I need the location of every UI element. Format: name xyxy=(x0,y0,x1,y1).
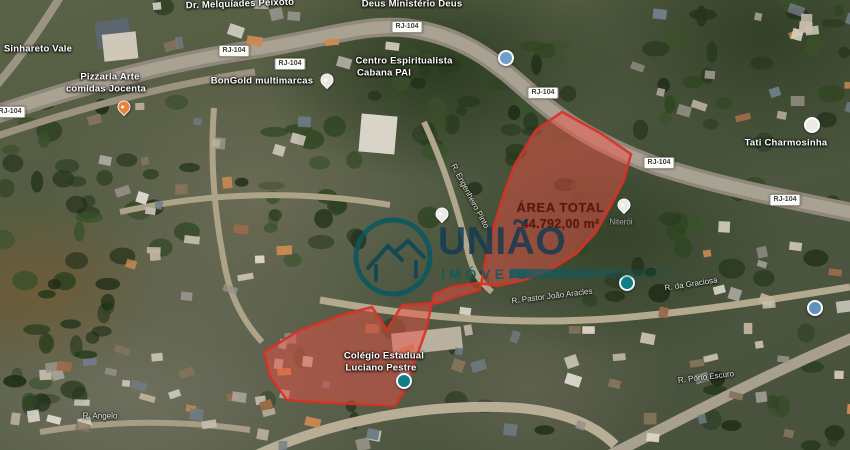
satellite-map[interactable]: Dr. Melquíades PeixotoDeus Ministério De… xyxy=(0,0,850,450)
highlighted-lot-polygon[interactable] xyxy=(264,112,631,406)
highlight-layer xyxy=(0,0,850,450)
